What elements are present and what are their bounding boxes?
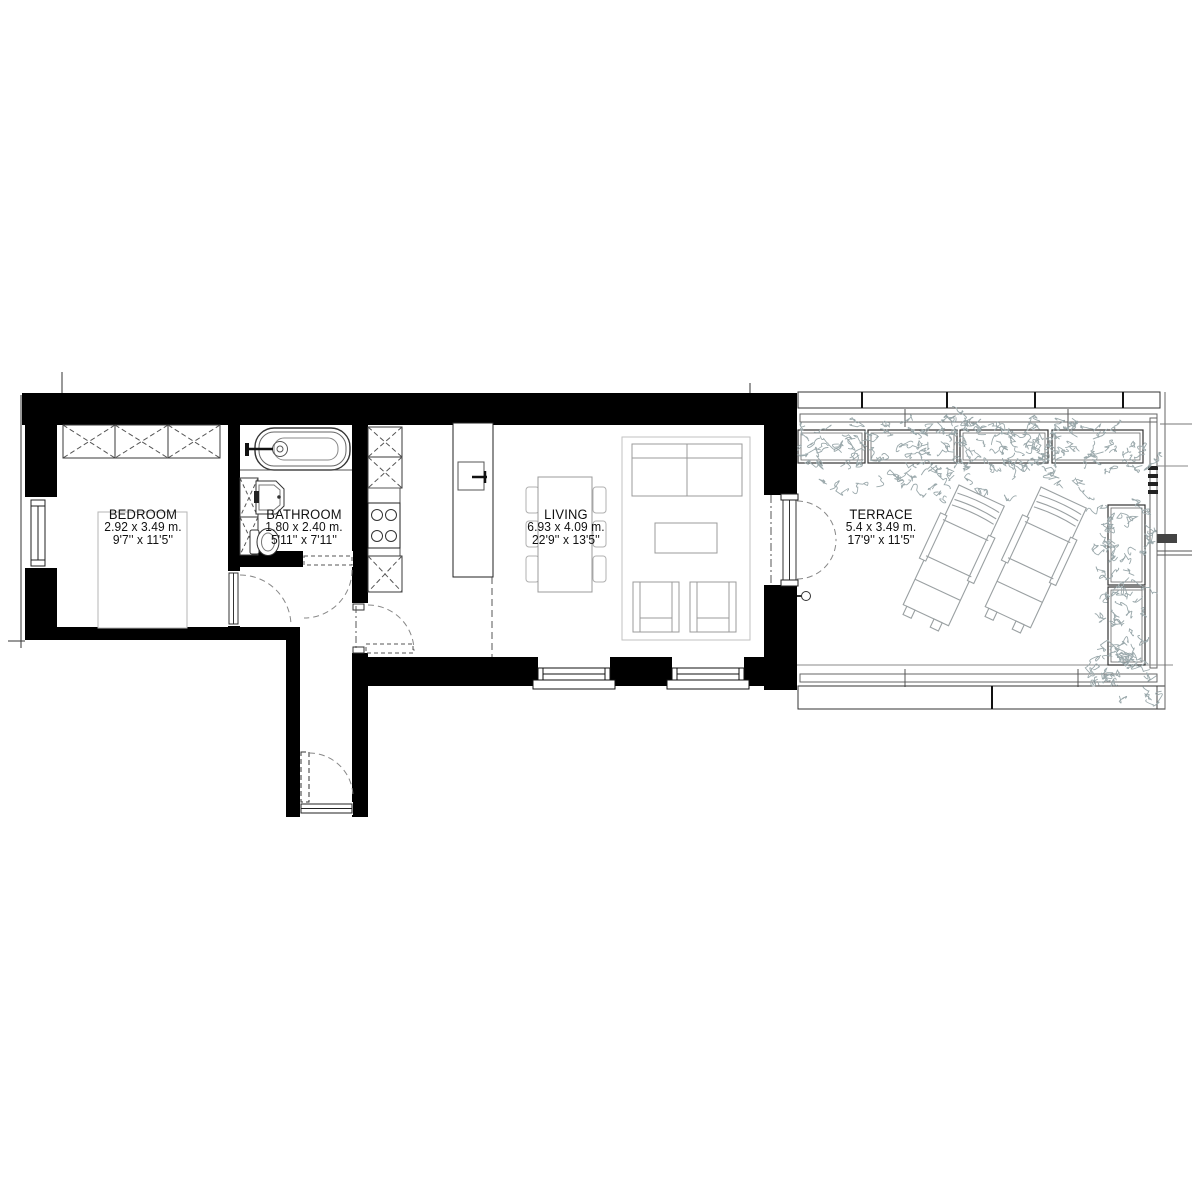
room-label-terrace: TERRACE 5.4 x 3.49 m. 17'9'' x 11'5''	[804, 508, 958, 547]
bedroom-door	[228, 571, 291, 626]
room-dim-imperial: 9'7'' x 11'5''	[66, 534, 220, 547]
bathtub	[240, 428, 352, 470]
door-stop	[797, 592, 811, 601]
kitchen-door	[352, 603, 414, 653]
armchair	[633, 582, 679, 632]
floorplan-drawing	[0, 0, 1200, 1200]
room-dim-imperial: 17'9'' x 11'5''	[804, 534, 958, 547]
kitchen-island	[453, 423, 493, 577]
armchair	[690, 582, 736, 632]
living-window-2	[667, 657, 749, 689]
coffee-table	[655, 523, 717, 553]
sofa	[632, 444, 742, 496]
floorplan-page: BEDROOM 2.92 x 3.49 m. 9'7'' x 11'5'' BA…	[0, 0, 1200, 1200]
bedroom-window	[25, 497, 57, 568]
room-label-bedroom: BEDROOM 2.92 x 3.49 m. 9'7'' x 11'5''	[66, 508, 220, 547]
wardrobe	[63, 425, 220, 458]
sun-loungers	[895, 483, 1091, 638]
bathroom-door	[303, 551, 353, 618]
room-dim-imperial: 5'11'' x 7'11''	[227, 534, 381, 547]
living-window-1	[533, 657, 615, 689]
kitchen	[368, 423, 493, 657]
room-label-living: LIVING 6.93 x 4.09 m. 22'9'' x 13'5''	[489, 508, 643, 547]
entry-door	[300, 752, 353, 815]
room-dim-imperial: 22'9'' x 13'5''	[489, 534, 643, 547]
room-label-bathroom: BATHROOM 1.80 x 2.40 m. 5'11'' x 7'11''	[227, 508, 381, 547]
